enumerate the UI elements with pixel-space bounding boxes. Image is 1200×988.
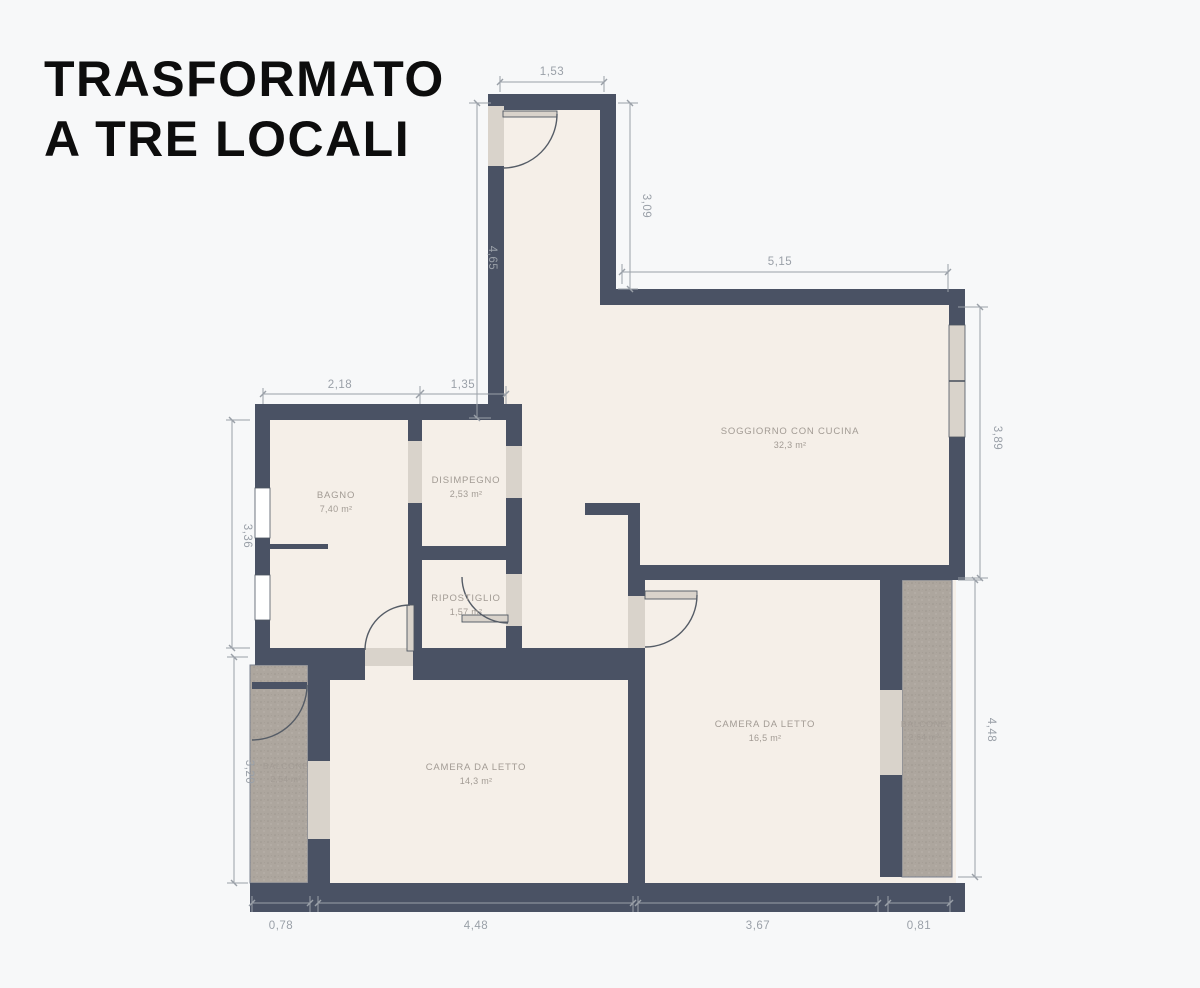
room-label-disimpegno: DISIMPEGNO: [432, 475, 501, 486]
wall-entry-right: [600, 94, 616, 305]
wall-lower-left: [255, 648, 365, 665]
plan-title-line2: A TRE LOCALI: [44, 111, 410, 167]
dimension-bath-height: 3,36: [226, 420, 253, 648]
room-area-camera-grande: 16,5 m²: [749, 733, 782, 743]
wall-corner-right: [880, 565, 965, 580]
dimension-living-width: 5,15: [622, 256, 948, 292]
threshold-bath-door: [365, 648, 413, 666]
room-label-bagno: BAGNO: [317, 490, 355, 501]
wall-hall-closet-divider: [408, 546, 522, 560]
svg-text:0,81: 0,81: [907, 920, 931, 932]
floor-plan-page: TRASFORMATO A TRE LOCALI: [0, 0, 1200, 988]
dimension-balcony-right-height: 4,48: [958, 580, 997, 877]
floor-plan-canvas: TRASFORMATO A TRE LOCALI: [0, 0, 1200, 988]
opening-bath-hall: [408, 441, 422, 503]
svg-text:3,36: 3,36: [241, 524, 253, 548]
room-label-balcone-sinistro: BALCONE: [263, 761, 309, 771]
svg-text:2,18: 2,18: [328, 379, 352, 391]
opening-balcony-left-door: [308, 761, 330, 839]
room-area-ripostiglio: 1,57 m²: [450, 607, 483, 617]
window-bath-upper: [255, 488, 270, 538]
svg-text:1,35: 1,35: [451, 379, 475, 391]
svg-text:3,89: 3,89: [991, 426, 1003, 450]
room-area-disimpegno: 2,53 m²: [450, 489, 483, 499]
room-area-soggiorno: 32,3 m²: [774, 440, 807, 450]
threshold-bath-door-inner: [365, 666, 413, 680]
wall-living-top: [600, 289, 965, 305]
wall-living-bedroom-divider: [628, 565, 880, 580]
svg-text:4,65: 4,65: [486, 246, 498, 270]
room-area-balcone-sinistro: 2,54 m²: [271, 774, 302, 784]
svg-text:3,67: 3,67: [746, 920, 770, 932]
room-label-camera-grande: CAMERA DA LETTO: [715, 719, 816, 730]
wall-bottom: [250, 883, 965, 912]
dimension-entry-right: 3,09: [618, 103, 652, 289]
opening-balcony-right-door: [880, 690, 902, 775]
wall-bath-partition: [270, 544, 328, 549]
svg-text:3,20: 3,20: [243, 760, 255, 784]
room-label-balcone-destro: BALCONE: [901, 719, 947, 729]
opening-hall-living: [506, 446, 522, 498]
dimension-entry-width: 1,53: [500, 66, 604, 92]
room-area-balcone-destro: 2,64 m²: [909, 732, 940, 742]
window-bath-lower: [255, 575, 270, 620]
room-area-bagno: 7,40 m²: [320, 504, 353, 514]
room-label-ripostiglio: RIPOSTIGLIO: [431, 593, 501, 604]
svg-text:0,78: 0,78: [269, 920, 293, 932]
plan-title-line1: TRASFORMATO: [44, 51, 445, 107]
opening-bedroom1-door: [628, 596, 645, 648]
opening-entry-door: [488, 106, 504, 166]
svg-text:5,15: 5,15: [768, 256, 792, 268]
dimension-bath-hall-widths: 2,18 1,35: [263, 379, 506, 404]
svg-text:3,09: 3,09: [640, 194, 652, 218]
room-area-camera-piccola: 14,3 m²: [460, 776, 493, 786]
room-label-soggiorno: SOGGIORNO CON CUCINA: [721, 426, 859, 437]
plan-title: TRASFORMATO A TRE LOCALI: [44, 51, 445, 167]
wall-entry-top: [488, 94, 615, 110]
svg-text:4,48: 4,48: [985, 718, 997, 742]
svg-text:4,48: 4,48: [464, 920, 488, 932]
wall-kitchen-stub-h: [585, 503, 640, 515]
room-label-camera-piccola: CAMERA DA LETTO: [426, 762, 527, 773]
wall-lower-right: [413, 648, 630, 665]
svg-text:1,53: 1,53: [540, 66, 564, 78]
